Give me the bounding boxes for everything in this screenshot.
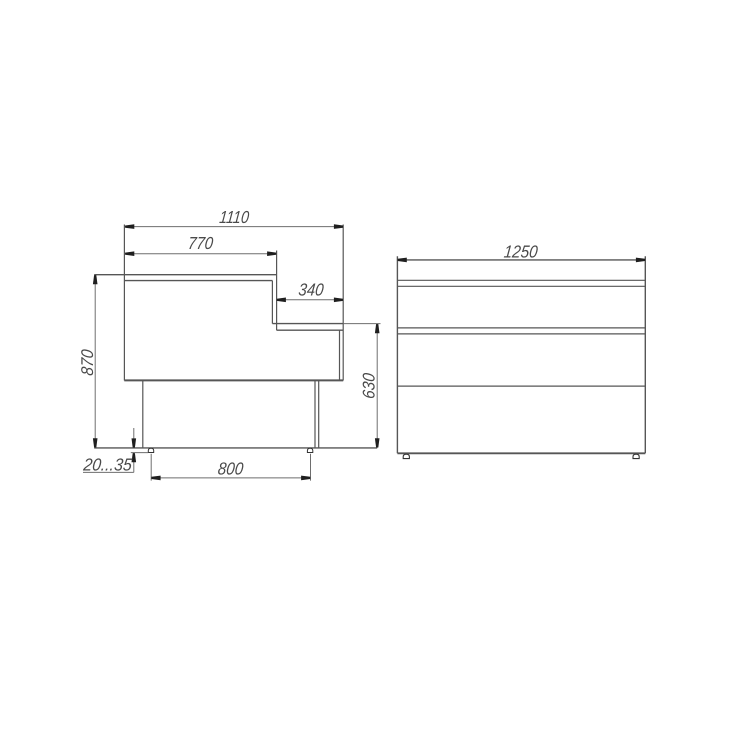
- svg-text:1110: 1110: [218, 207, 250, 227]
- svg-text:1250: 1250: [503, 241, 539, 261]
- svg-text:770: 770: [187, 233, 214, 253]
- svg-text:630: 630: [359, 372, 378, 400]
- svg-text:340: 340: [298, 280, 325, 300]
- svg-text:800: 800: [217, 458, 245, 478]
- svg-text:870: 870: [78, 348, 97, 376]
- svg-text:20...35: 20...35: [82, 454, 134, 474]
